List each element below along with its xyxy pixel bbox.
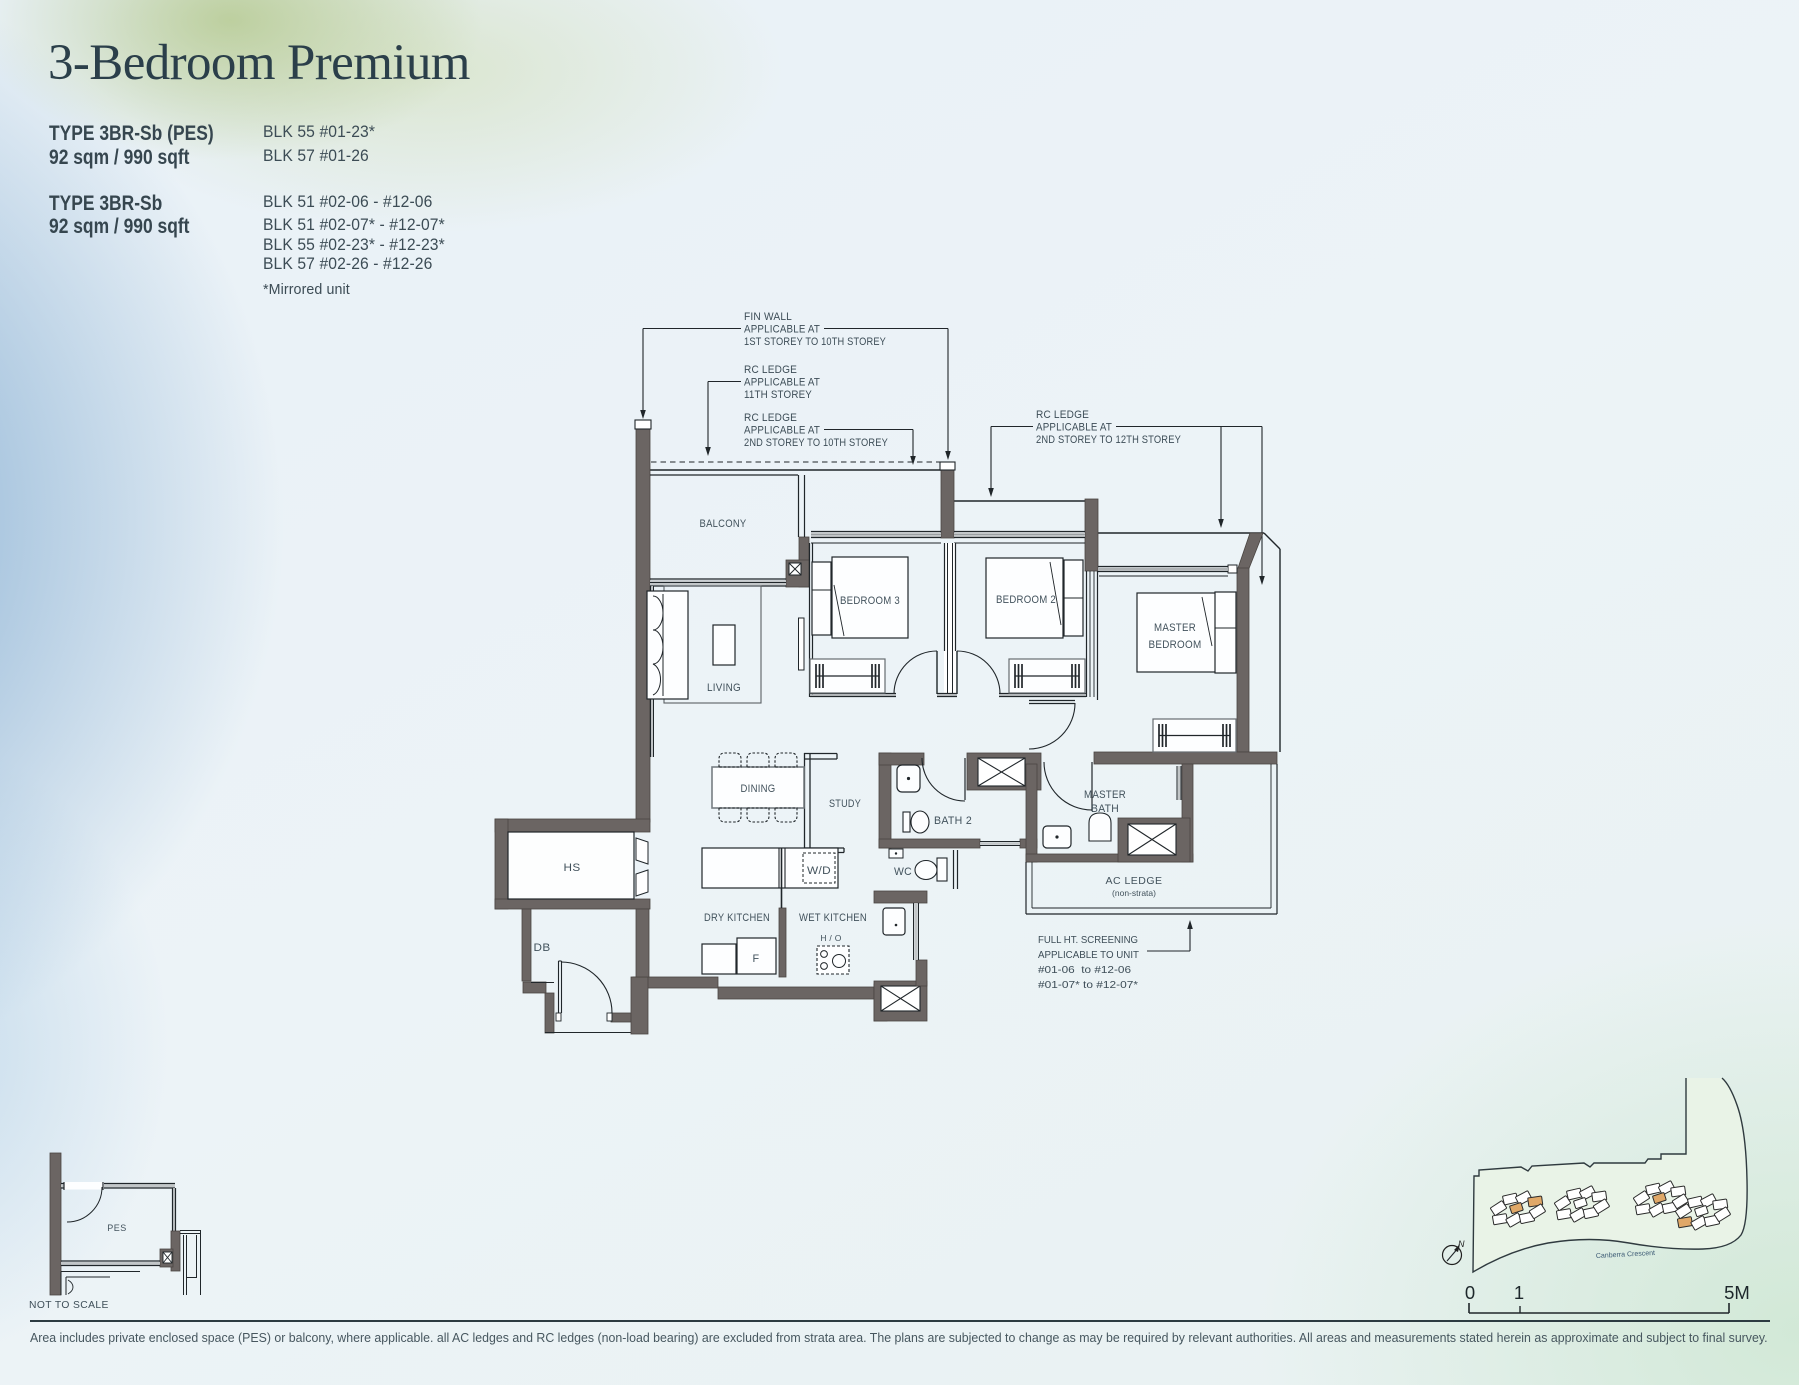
svg-text:#01-06 to #12-06: #01-06 to #12-06 — [1038, 964, 1131, 976]
svg-text:WET KITCHEN: WET KITCHEN — [799, 912, 867, 924]
svg-text:5M: 5M — [1724, 1282, 1750, 1303]
svg-text:W/D: W/D — [807, 865, 831, 877]
svg-text:F: F — [753, 953, 760, 965]
svg-text:NOT TO SCALE: NOT TO SCALE — [29, 1300, 109, 1311]
svg-text:11TH STOREY: 11TH STOREY — [744, 389, 812, 401]
svg-text:PES: PES — [107, 1223, 127, 1233]
svg-text:H / O: H / O — [820, 933, 841, 943]
svg-text:DB: DB — [534, 942, 551, 954]
svg-text:APPLICABLE AT: APPLICABLE AT — [744, 377, 820, 389]
svg-text:FULL HT. SCREENING: FULL HT. SCREENING — [1038, 934, 1138, 946]
svg-text:DRY KITCHEN: DRY KITCHEN — [704, 912, 770, 924]
svg-text:HS: HS — [564, 862, 581, 874]
svg-text:RC LEDGE: RC LEDGE — [1036, 409, 1089, 421]
svg-text:#01-07* to #12-07*: #01-07* to #12-07* — [1038, 979, 1138, 991]
svg-text:(non-strata): (non-strata) — [1112, 888, 1156, 898]
svg-text:MASTER: MASTER — [1084, 789, 1126, 801]
svg-text:LIVING: LIVING — [707, 682, 741, 694]
svg-text:APPLICABLE AT: APPLICABLE AT — [744, 324, 820, 336]
svg-text:0: 0 — [1465, 1282, 1475, 1303]
svg-text:N: N — [1458, 1239, 1465, 1249]
svg-text:WC: WC — [894, 866, 912, 878]
svg-text:2ND STOREY TO 12TH STOREY: 2ND STOREY TO 12TH STOREY — [1036, 434, 1181, 446]
svg-text:1ST STOREY TO 10TH STOREY: 1ST STOREY TO 10TH STOREY — [744, 336, 886, 348]
svg-text:APPLICABLE AT: APPLICABLE AT — [744, 425, 820, 437]
svg-text:BALCONY: BALCONY — [700, 518, 747, 530]
svg-text:RC LEDGE: RC LEDGE — [744, 412, 797, 424]
svg-text:APPLICABLE AT: APPLICABLE AT — [1036, 422, 1112, 434]
svg-text:BEDROOM 2: BEDROOM 2 — [996, 594, 1056, 606]
svg-text:STUDY: STUDY — [829, 798, 861, 810]
svg-text:AC LEDGE: AC LEDGE — [1105, 875, 1162, 887]
svg-text:Canberra Crescent: Canberra Crescent — [1596, 1250, 1655, 1260]
svg-text:BEDROOM 3: BEDROOM 3 — [840, 595, 900, 607]
svg-text:BATH: BATH — [1091, 803, 1119, 815]
svg-text:BATH 2: BATH 2 — [934, 815, 972, 827]
svg-text:APPLICABLE TO UNIT: APPLICABLE TO UNIT — [1038, 949, 1140, 961]
svg-text:FIN WALL: FIN WALL — [744, 311, 792, 323]
svg-text:1: 1 — [1514, 1282, 1524, 1303]
svg-text:DINING: DINING — [741, 783, 776, 795]
svg-text:MASTER: MASTER — [1154, 622, 1196, 634]
svg-text:RC LEDGE: RC LEDGE — [744, 364, 797, 376]
svg-text:BEDROOM: BEDROOM — [1149, 639, 1202, 651]
svg-text:2ND STOREY TO 10TH STOREY: 2ND STOREY TO 10TH STOREY — [744, 437, 888, 449]
